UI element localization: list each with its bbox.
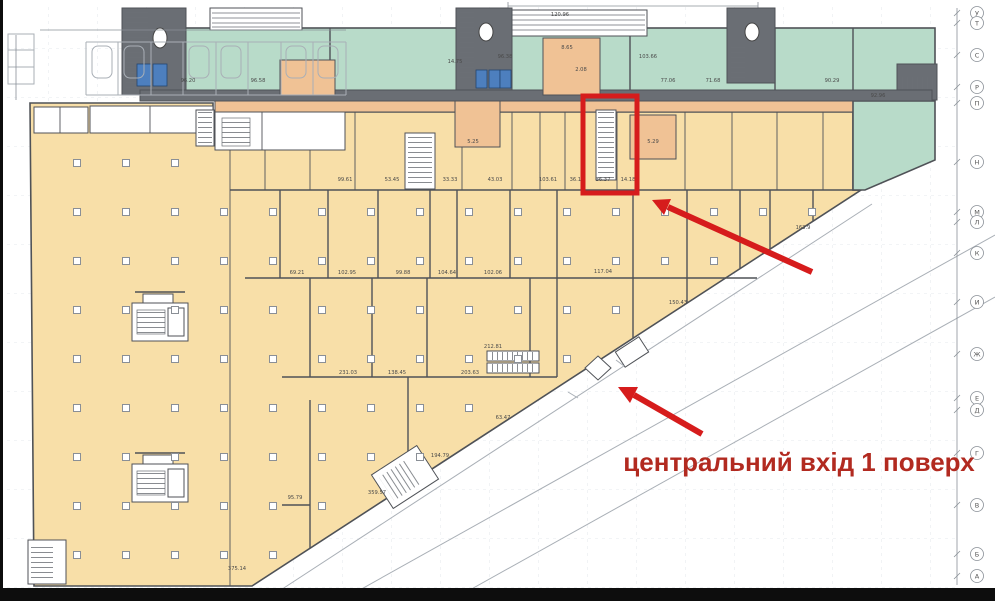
column-icon [221,552,228,559]
column-icon [564,209,571,216]
column-icon [172,307,179,314]
room-area-label: 99.61 [338,177,353,183]
column-icon [74,552,81,559]
column-icon [123,552,130,559]
room-area-label: 102.95 [338,270,356,276]
grid-axis-letter: С [975,51,980,59]
column-icon [74,503,81,510]
column-icon [368,356,375,363]
column-icon [466,356,473,363]
stairwell-row1 [405,133,435,189]
column-icon [466,307,473,314]
column-icon [662,258,669,265]
room-area-label: 96.20 [181,78,196,84]
column-icon [515,258,522,265]
column-icon [760,209,767,216]
room-area-label: 203.63 [461,370,479,376]
column-icon [74,258,81,265]
column-icon [319,209,326,216]
column-icon [368,307,375,314]
corridor-band [215,100,853,112]
room-area-label: 359.57 [368,490,386,496]
column-icon [613,258,620,265]
room-area-label: 43.03 [488,177,503,183]
column-icon [711,258,718,265]
room-area-label: 33.33 [443,177,458,183]
column-icon [221,307,228,314]
room-area-label: 14.75 [448,59,463,65]
column-icon [172,503,179,510]
column-icon [123,307,130,314]
column-icon [270,552,277,559]
column-icon [417,356,424,363]
column-icon [74,160,81,167]
room-area-label: 92.96 [871,93,886,99]
grid-axis-letter: Б [975,550,979,558]
elevator-icon [476,70,487,88]
column-icon [172,454,179,461]
room-area-label: 95.79 [288,495,303,501]
column-icon [515,356,522,363]
column-icon [172,258,179,265]
room-area-label: 138.45 [388,370,406,376]
room-area-label: 36.37 [596,177,611,183]
column-icon [564,258,571,265]
grid-axis-letter: Л [975,218,980,226]
column-icon [123,356,130,363]
column-icon [270,209,277,216]
room-area-label: 120.96 [551,12,569,18]
column-icon [319,356,326,363]
column-icon [221,356,228,363]
room-area-label: 102.06 [484,270,502,276]
column-icon [319,258,326,265]
room-area-label: 5.29 [647,139,659,145]
room-area-label: 231.03 [339,370,357,376]
column-icon [564,356,571,363]
room-area-label: 375.14 [228,566,247,572]
column-icon [74,356,81,363]
column-icon [417,307,424,314]
column-icon [123,209,130,216]
room-area-label: 99.88 [396,270,411,276]
room-area-label: 117.04 [594,269,613,275]
room-area-label: 96.38 [498,54,513,60]
column-icon [417,405,424,412]
column-icon [466,258,473,265]
entrance-annotation: центральний вхід 1 поверх [623,447,975,477]
column-icon [221,454,228,461]
elevator-icon [153,64,167,86]
column-icon [368,258,375,265]
column-icon [417,454,424,461]
grid-axis-letter: Г [975,449,979,457]
column-icon [172,160,179,167]
column-icon [221,209,228,216]
column-icon [319,503,326,510]
elevator-icon [500,70,511,88]
room-area-label: 104.64 [438,270,457,276]
column-icon [417,258,424,265]
grid-axis-letter: Т [974,19,979,27]
floor-plan-canvas: УТСРПНМЛКИЖЕДГВБА 99.6153.4533.3343.0310… [0,0,995,601]
stair-in-highlight [596,110,616,180]
room-area-label: 77.06 [661,78,676,84]
column-icon [74,454,81,461]
column-icon [123,258,130,265]
column-icon [270,356,277,363]
column-icon [74,307,81,314]
elevator-icon [489,70,500,88]
column-icon [515,209,522,216]
column-icon [368,405,375,412]
grid-axis-letter: Н [975,158,980,166]
column-icon [613,209,620,216]
column-icon [221,503,228,510]
grid-axis-letter: К [975,249,980,257]
column-icon [466,209,473,216]
grid-axis-letter: Ж [973,350,980,358]
grid-axis-letter: Р [975,83,979,91]
left-black-strip [0,0,3,601]
room-area-label: 71.68 [706,78,721,84]
column-icon [123,405,130,412]
grid-axis-letter: П [975,99,980,107]
column-icon [466,405,473,412]
column-icon [74,405,81,412]
room-area-label: 14.18 [621,177,636,183]
column-icon [270,454,277,461]
grid-axis-letter: В [975,501,979,509]
column-icon [172,552,179,559]
grid-axis-letter: А [975,572,980,580]
column-icon [270,258,277,265]
column-icon [270,405,277,412]
column-icon [319,307,326,314]
column-icon [221,405,228,412]
column-icon [417,209,424,216]
floor-plan-screenshot: УТСРПНМЛКИЖЕДГВБА 99.6153.4533.3343.0310… [0,0,995,601]
room-area-label: 150.43 [669,300,687,306]
room-area-label: 163.9 [796,225,811,231]
room-area-label: 69.21 [290,270,305,276]
column-icon [564,307,571,314]
column-icon [172,356,179,363]
column-icon [123,454,130,461]
column-icon [74,209,81,216]
column-icon [809,209,816,216]
column-icon [319,454,326,461]
column-icon [172,209,179,216]
grid-axis-right: УТСРПНМЛКИЖЕДГВБА [954,7,984,586]
room-area-label: 8.65 [561,45,573,51]
column-icon [172,405,179,412]
column-icon [221,258,228,265]
column-icon [368,209,375,216]
column-icon [515,307,522,314]
room-area-label: 103.61 [539,177,557,183]
room-area-label: 53.45 [385,177,400,183]
stairwell-bottom-left [28,540,66,584]
column-icon [123,503,130,510]
room-area-label: 212.81 [484,344,502,350]
room-area-label: 5.25 [467,139,479,145]
bottom-black-bar [0,588,995,601]
room-area-label: 63.47 [496,415,511,421]
room-area-label: 194.79 [431,453,449,459]
column-icon [711,209,718,216]
room-area-label: 103.66 [639,54,657,60]
room-area-label: 90.29 [825,78,840,84]
grid-axis-letter: Е [975,394,979,402]
column-icon [613,307,620,314]
column-icon [270,307,277,314]
room-area-label: 2.08 [575,67,587,73]
column-icon [319,405,326,412]
column-icon [368,454,375,461]
grid-axis-letter: И [975,298,980,306]
column-icon [123,160,130,167]
room-area-label: 96.58 [251,78,266,84]
column-icon [270,503,277,510]
grid-axis-letter: Д [974,406,979,414]
